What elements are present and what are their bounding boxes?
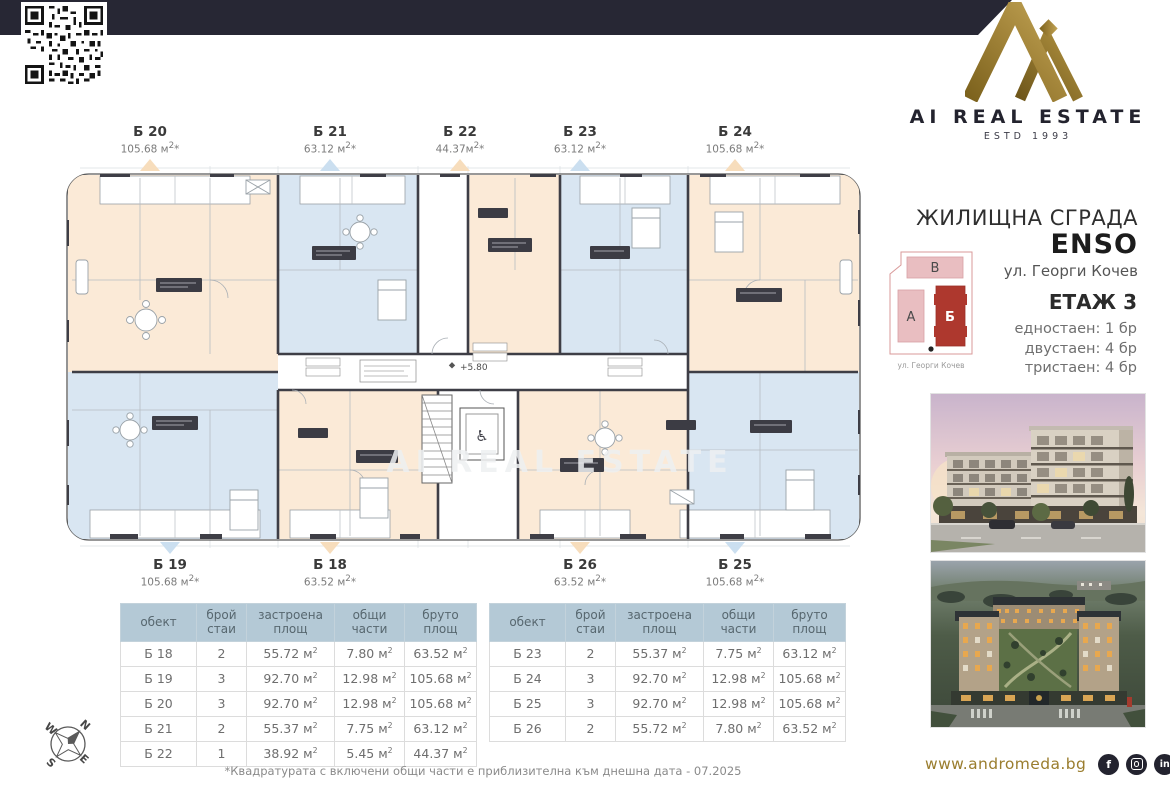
table-cell: 105.68 м2	[774, 691, 846, 716]
unit-labels-bottom: Б 19105.68 м2*Б 1863.52 м2*Б 2663.52 м2*…	[60, 542, 870, 592]
table-header-cell: застроена площ	[616, 604, 704, 642]
site-building-a: А	[907, 310, 916, 325]
table-row: Б 19392.70 м212.98 м2105.68 м2	[121, 666, 477, 691]
compass-rose: N E S W	[28, 700, 108, 784]
flyer-page: ЕКСКЛУЗИВНО ОТ	[0, 0, 1170, 785]
table-header-cell: бруто площ	[405, 604, 477, 642]
table-header-row: обектброй стаизастроена площобщи частибр…	[490, 604, 846, 642]
table-cell: 12.98 м2	[335, 666, 405, 691]
floor-mix-line: едностаен: 1 бр	[985, 320, 1137, 340]
unit-id: Б 24	[690, 124, 780, 140]
floor-info: ЕТАЖ 3 едностаен: 1 бр двустаен: 4 бр тр…	[985, 290, 1137, 379]
instagram-glyph	[1131, 758, 1143, 770]
unit-pointer-triangle	[160, 542, 180, 554]
unit-label-б19: Б 19105.68 м2*	[125, 542, 215, 589]
unit-label-б24: Б 24105.68 м2*	[690, 124, 780, 171]
table-cell: 1	[197, 741, 247, 766]
table-row: Б 22138.92 м25.45 м244.37 м2	[121, 741, 477, 766]
table-cell: 55.37 м2	[247, 716, 335, 741]
qr-code-image	[25, 6, 103, 84]
unit-label-б23: Б 2363.12 м2*	[535, 124, 625, 171]
table-cell: 44.37 м2	[405, 741, 477, 766]
area-table-right: обектброй стаизастроена площобщи частибр…	[489, 603, 846, 742]
site-street-label: ул. Георги Кочев	[878, 361, 984, 370]
table-cell: 105.68 м2	[774, 666, 846, 691]
table-cell: 7.75 м2	[335, 716, 405, 741]
table-header-cell: обект	[121, 604, 197, 642]
wheelchair-icon: ♿	[475, 427, 488, 445]
table-cell: Б 24	[490, 666, 566, 691]
unit-pointer-triangle	[570, 159, 590, 171]
brand-logo-icon	[965, 2, 1085, 102]
table-cell: 12.98 м2	[704, 666, 774, 691]
table-cell: 55.37 м2	[616, 641, 704, 666]
table-cell: 12.98 м2	[704, 691, 774, 716]
unit-area: 105.68 м2*	[125, 574, 215, 589]
table-cell: Б 19	[121, 666, 197, 691]
table-cell: 2	[566, 716, 616, 741]
unit-pointer-triangle	[320, 542, 340, 554]
unit-area: 105.68 м2*	[105, 141, 195, 156]
table-cell: Б 20	[121, 691, 197, 716]
table-cell: 92.70 м2	[247, 666, 335, 691]
building-render-street	[930, 393, 1146, 553]
unit-id: Б 21	[285, 124, 375, 140]
compass-n: N	[77, 717, 93, 733]
unit-id: Б 23	[535, 124, 625, 140]
table-row: Б 18255.72 м27.80 м263.52 м2	[121, 641, 477, 666]
unit-area: 63.12 м2*	[285, 141, 375, 156]
table-row: Б 20392.70 м212.98 м2105.68 м2	[121, 691, 477, 716]
plan-watermark: AI REAL ESTATE	[386, 445, 733, 480]
site-building-v: В	[931, 261, 940, 276]
unit-id: Б 20	[105, 124, 195, 140]
table-cell: 63.12 м2	[774, 641, 846, 666]
unit-pointer-triangle	[320, 159, 340, 171]
table-header-cell: общи части	[335, 604, 405, 642]
unit-label-б20: Б 20105.68 м2*	[105, 124, 195, 171]
table-cell: 105.68 м2	[405, 666, 477, 691]
area-table-left: обектброй стаизастроена площобщи частибр…	[120, 603, 477, 767]
table-header-cell: брой стаи	[566, 604, 616, 642]
facebook-icon[interactable]: f	[1098, 754, 1119, 775]
building-render-aerial	[930, 560, 1146, 728]
unit-labels-top: Б 20105.68 м2*Б 2163.12 м2*Б 2244.37м2*Б…	[60, 124, 870, 174]
unit-label-б22: Б 2244.37м2*	[415, 124, 505, 171]
table-cell: 63.52 м2	[405, 641, 477, 666]
unit-area: 63.52 м2*	[535, 574, 625, 589]
table-cell: 55.72 м2	[616, 716, 704, 741]
table-row: Б 26255.72 м27.80 м263.52 м2	[490, 716, 846, 741]
brand-name: AI REAL ESTATE	[908, 106, 1148, 128]
table-cell: 2	[197, 716, 247, 741]
footnote: *Квадратурата с включени общи части е пр…	[120, 764, 846, 778]
table-cell: 55.72 м2	[247, 641, 335, 666]
unit-id: Б 26	[535, 557, 625, 573]
unit-area: 105.68 м2*	[690, 574, 780, 589]
table-cell: 7.80 м2	[704, 716, 774, 741]
instagram-icon[interactable]	[1126, 754, 1147, 775]
table-cell: 105.68 м2	[405, 691, 477, 716]
table-cell: 2	[566, 641, 616, 666]
unit-area: 63.52 м2*	[285, 574, 375, 589]
floor-mix-line: двустаен: 4 бр	[985, 340, 1137, 360]
table-cell: 12.98 м2	[335, 691, 405, 716]
table-header-cell: общи части	[704, 604, 774, 642]
table-cell: Б 21	[121, 716, 197, 741]
table-cell: 38.92 м2	[247, 741, 335, 766]
site-building-b: Б	[945, 310, 955, 325]
facebook-glyph: f	[1106, 758, 1111, 771]
floor-plan: ♿ +5.80 AI REAL ESTATE	[60, 120, 870, 595]
footer: www.andromeda.bg f in	[925, 750, 1165, 778]
floor-plan-drawing: ♿ +5.80 AI REAL ESTATE	[60, 120, 870, 595]
exclusive-banner	[0, 0, 1012, 35]
table-row: Б 25392.70 м212.98 м2105.68 м2	[490, 691, 846, 716]
table-cell: 7.75 м2	[704, 641, 774, 666]
table-cell: 92.70 м2	[616, 691, 704, 716]
unit-id: Б 18	[285, 557, 375, 573]
unit-pointer-triangle	[725, 159, 745, 171]
compass-s: S	[44, 755, 59, 770]
table-cell: 92.70 м2	[247, 691, 335, 716]
brand-estd: ESTD 1993	[908, 131, 1148, 142]
site-plan: В А Б	[884, 248, 978, 360]
table-cell: 7.80 м2	[335, 641, 405, 666]
table-cell: Б 25	[490, 691, 566, 716]
table-cell: 3	[197, 691, 247, 716]
table-header-cell: бруто площ	[774, 604, 846, 642]
unit-area: 105.68 м2*	[690, 141, 780, 156]
qr-code	[25, 6, 103, 84]
unit-label-б26: Б 2663.52 м2*	[535, 542, 625, 589]
table-header-cell: обект	[490, 604, 566, 642]
table-cell: Б 18	[121, 641, 197, 666]
table-row: Б 21255.37 м27.75 м263.12 м2	[121, 716, 477, 741]
table-cell: 3	[566, 691, 616, 716]
unit-label-б18: Б 1863.52 м2*	[285, 542, 375, 589]
unit-label-б21: Б 2163.12 м2*	[285, 124, 375, 171]
project-type: ЖИЛИЩНА СГРАДА	[895, 206, 1138, 230]
table-cell: Б 22	[121, 741, 197, 766]
unit-area: 44.37м2*	[415, 141, 505, 156]
table-header-cell: застроена площ	[247, 604, 335, 642]
unit-pointer-triangle	[140, 159, 160, 171]
unit-id: Б 25	[690, 557, 780, 573]
site-entrance-marker	[928, 346, 933, 351]
table-cell: 2	[197, 641, 247, 666]
unit-area: 63.12 м2*	[535, 141, 625, 156]
floor-title: ЕТАЖ 3	[985, 290, 1137, 314]
floor-mix-line: тристаен: 4 бр	[985, 359, 1137, 379]
unit-pointer-triangle	[450, 159, 470, 171]
table-cell: 63.52 м2	[774, 716, 846, 741]
linkedin-glyph: in	[1160, 759, 1170, 770]
elevation-label: +5.80	[460, 363, 488, 373]
table-cell: 5.45 м2	[335, 741, 405, 766]
table-cell: 3	[197, 666, 247, 691]
unit-id: Б 19	[125, 557, 215, 573]
unit-id: Б 22	[415, 124, 505, 140]
website-link[interactable]: www.andromeda.bg	[925, 755, 1086, 773]
table-cell: 3	[566, 666, 616, 691]
table-header-row: обектброй стаизастроена площобщи частибр…	[121, 604, 477, 642]
table-row: Б 24392.70 м212.98 м2105.68 м2	[490, 666, 846, 691]
unit-label-б25: Б 25105.68 м2*	[690, 542, 780, 589]
table-cell: Б 23	[490, 641, 566, 666]
unit-pointer-triangle	[725, 542, 745, 554]
unit-pointer-triangle	[570, 542, 590, 554]
table-cell: Б 26	[490, 716, 566, 741]
table-header-cell: брой стаи	[197, 604, 247, 642]
table-cell: 63.12 м2	[405, 716, 477, 741]
table-cell: 92.70 м2	[616, 666, 704, 691]
linkedin-icon[interactable]: in	[1154, 754, 1170, 775]
table-row: Б 23255.37 м27.75 м263.12 м2	[490, 641, 846, 666]
